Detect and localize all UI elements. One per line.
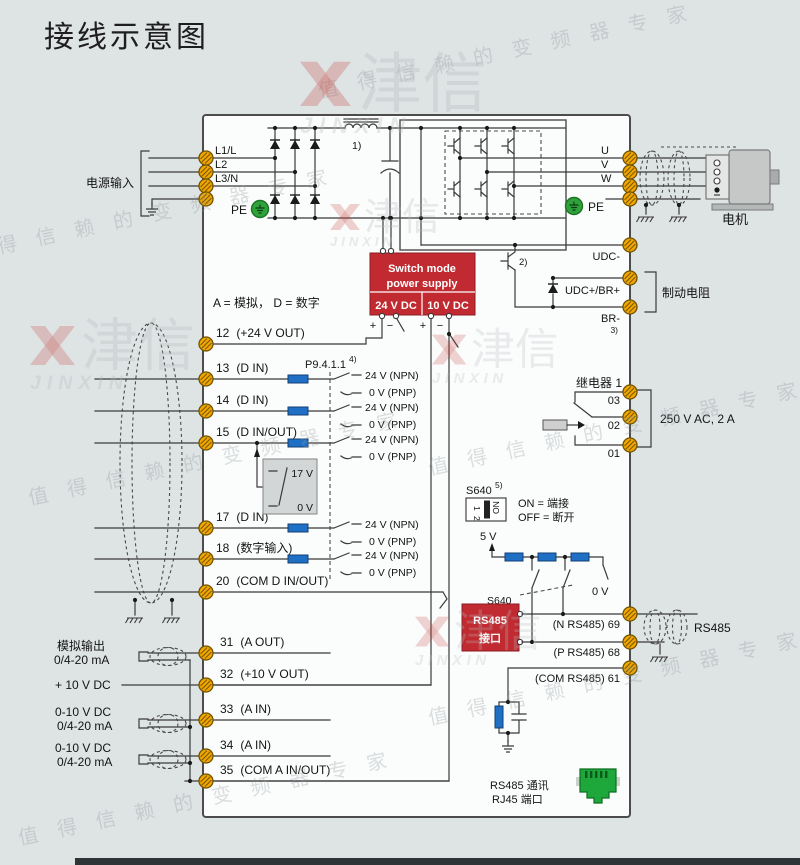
terminal-rs485-69 <box>623 607 637 621</box>
relay-label-01: 01 <box>608 448 620 460</box>
terminal-relay-02 <box>623 410 637 424</box>
terminal-label-l3: L3/N <box>215 173 238 185</box>
terminal-label-v: V <box>601 159 609 171</box>
terminal-l2 <box>199 165 213 179</box>
svg-text:18(数字输入): 18(数字输入) <box>216 540 292 555</box>
terminal-15 <box>199 436 213 450</box>
s640-0v-label: 0 V <box>592 586 609 598</box>
termination-resistor-icon <box>538 553 556 561</box>
relay-rating: 250 V AC, 2 A <box>660 412 735 426</box>
terminal-13-num: 13 <box>216 361 230 375</box>
shield-ground-icon <box>670 217 688 222</box>
terminal-input-gnd <box>199 192 213 206</box>
pnp-label: 0 V (PNP) <box>369 451 416 463</box>
terminal-14-name: (D IN) <box>236 393 268 407</box>
terminal-35 <box>199 774 213 788</box>
terminal-rs485-61 <box>623 661 637 675</box>
control-cable-shield-icon <box>120 323 182 603</box>
terminal-12-name: (+24 V OUT) <box>236 326 304 340</box>
terminal-35-num: 35 <box>220 763 234 777</box>
rs485-com-label: (COM RS485) 61 <box>535 673 620 685</box>
rs485-comm-line1: RS485 通讯 <box>490 779 549 792</box>
terminal-31-num: 31 <box>220 635 234 649</box>
dip-on-label: ON <box>491 501 501 514</box>
power-input-section: 电源输入 <box>86 151 199 216</box>
footer-rule <box>75 858 800 865</box>
motor-label: 电机 <box>722 212 748 227</box>
terminal-udc-minus <box>623 238 637 252</box>
svg-text:17(D IN): 17(D IN) <box>216 510 268 524</box>
power-input-bracket <box>141 151 149 216</box>
rs485-p-label: (P RS485) 68 <box>554 647 620 659</box>
terminal-18-name: (数字输入) <box>236 540 292 555</box>
rs485-box-line2: 接口 <box>479 631 501 645</box>
input-resistor-icon <box>288 439 308 447</box>
s640-dip-switch-icon: 1 2 ON <box>466 498 506 521</box>
threshold-high-label: 17 V <box>291 468 313 480</box>
dip-2-label: 2 <box>472 516 482 521</box>
watermark-brand-cn: 津信 <box>81 314 195 378</box>
pe-terminal-input-icon <box>252 201 269 218</box>
terminal-label-w: W <box>601 173 612 185</box>
input-resistor-icon <box>288 524 308 532</box>
wiring-diagram-page: 接线示意图 电源输入 L1/L L2 L3/N 1) <box>0 0 800 865</box>
terminal-31 <box>199 646 213 660</box>
psu-24v-plus: + <box>370 320 376 332</box>
terminal-v <box>623 165 637 179</box>
psu-24v-label: 24 V DC <box>375 300 417 312</box>
svg-text:34(A IN): 34(A IN) <box>220 738 271 752</box>
psu-24v-minus: − <box>387 320 393 332</box>
rs485-box-line1: RS485 <box>473 615 507 627</box>
svg-text:15(D IN/OUT): 15(D IN/OUT) <box>216 425 297 439</box>
svg-text:31(A OUT): 31(A OUT) <box>220 635 284 649</box>
terminal-32-name: (+10 V OUT) <box>240 667 308 681</box>
terminal-l3 <box>199 179 213 193</box>
npn-label: 24 V (NPN) <box>365 402 419 414</box>
label-br-minus: BR- <box>601 313 620 325</box>
analog-in1-range: 0/4-20 mA <box>57 719 112 733</box>
watermark-slogan: 值 得 信 赖 的 变 频 器 专 家 <box>316 1 695 103</box>
svg-text:13(D IN): 13(D IN) <box>216 361 268 375</box>
label-udc-plus: UDC+/BR+ <box>565 285 620 297</box>
psu-title-2: power supply <box>387 278 459 290</box>
terminal-33 <box>199 713 213 727</box>
rc-resistor-icon <box>495 706 503 728</box>
svg-text:14(D IN): 14(D IN) <box>216 393 268 407</box>
relay-bracket <box>637 390 651 447</box>
terminal-20 <box>199 585 213 599</box>
terminal-12 <box>199 337 213 351</box>
brake-resistor-bracket <box>645 272 656 312</box>
psu-10v-minus: − <box>437 320 443 332</box>
s640-label: S640 <box>466 485 492 497</box>
input-resistor-icon <box>288 375 308 383</box>
terminal-relay-01 <box>623 438 637 452</box>
terminal-14 <box>199 404 213 418</box>
pnp-label: 0 V (PNP) <box>369 419 416 431</box>
analog-in1-type: 0-10 V DC <box>55 705 111 719</box>
note-3: 3) <box>610 325 618 335</box>
threshold-low-label: 0 V <box>297 502 313 514</box>
input-resistor-icon <box>288 407 308 415</box>
motor-icon <box>706 150 779 210</box>
svg-text:12(+24 V OUT): 12(+24 V OUT) <box>216 326 305 340</box>
s640-off-rule: OFF = 断开 <box>518 510 575 524</box>
terminal-35-name: (COM A IN/OUT) <box>240 763 330 777</box>
terminal-motor-shield <box>623 192 637 206</box>
terminal-34-name: (A IN) <box>240 738 271 752</box>
terminal-relay-03 <box>623 385 637 399</box>
analog-out-label: 模拟输出 <box>57 638 105 653</box>
terminal-label-l2: L2 <box>215 159 227 171</box>
terminal-18-num: 18 <box>216 541 230 555</box>
watermark-brand-cn: 津信 <box>358 48 487 120</box>
relay-label-03: 03 <box>608 395 620 407</box>
pe-terminal-output-icon <box>566 198 583 215</box>
terminal-33-num: 33 <box>220 702 234 716</box>
terminal-label-u: U <box>601 145 609 157</box>
terminal-15-name: (D IN/OUT) <box>236 425 297 439</box>
terminal-18 <box>199 552 213 566</box>
terminal-l1 <box>199 151 213 165</box>
pe-label-input: PE <box>231 203 247 217</box>
terminal-34-num: 34 <box>220 738 234 752</box>
npn-label: 24 V (NPN) <box>365 550 419 562</box>
terminal-34 <box>199 749 213 763</box>
shield-ground-icon <box>637 217 655 222</box>
terminal-w <box>623 179 637 193</box>
shield-ground-icon <box>163 618 181 623</box>
terminal-13 <box>199 372 213 386</box>
npn-label: 24 V (NPN) <box>365 370 419 382</box>
terminal-32 <box>199 678 213 692</box>
label-udc-minus: UDC- <box>593 251 621 263</box>
svg-text:33(A IN): 33(A IN) <box>220 702 271 716</box>
terminal-u <box>623 151 637 165</box>
terminal-20-name: (COM D IN/OUT) <box>236 574 328 588</box>
s640-5v-label: 5 V <box>480 531 497 543</box>
page-title: 接线示意图 <box>44 21 209 54</box>
relay-title: 继电器 1 <box>576 376 622 390</box>
rs485-cable-label: RS485 <box>694 621 731 635</box>
terminal-15-num: 15 <box>216 425 230 439</box>
termination-resistor-icon <box>571 553 589 561</box>
npn-label: 24 V (NPN) <box>365 519 419 531</box>
pnp-label: 0 V (PNP) <box>369 536 416 548</box>
shield-ground-icon <box>651 657 669 662</box>
motor-cable-shield-icon <box>640 151 690 205</box>
analog-out-range: 0/4-20 mA <box>54 653 109 667</box>
termination-resistor-icon <box>505 553 523 561</box>
terminal-12-num: 12 <box>216 326 230 340</box>
psu-title-1: Switch mode <box>388 263 456 275</box>
watermark-brand-en: JINXIN <box>30 372 129 394</box>
relay-label-02: 02 <box>608 420 620 432</box>
note-1: 1) <box>352 140 361 152</box>
ground-icon <box>146 203 158 215</box>
rs485-n-label: (N RS485) 69 <box>553 619 620 631</box>
terminal-udc-plus <box>623 271 637 285</box>
analog-in2-type: 0-10 V DC <box>55 741 111 755</box>
note-5: 5) <box>495 480 503 490</box>
relay-coil-icon <box>543 420 567 430</box>
terminal-33-name: (A IN) <box>240 702 271 716</box>
p-ref-label: P9.4.1.1 <box>305 359 346 371</box>
analog-in2-range: 0/4-20 mA <box>57 755 112 769</box>
legend-label: A = 模拟， D = 数字 <box>213 295 320 310</box>
brake-resistor-label: 制动电阻 <box>662 286 710 300</box>
terminal-label-l1: L1/L <box>215 145 236 157</box>
pnp-label: 0 V (PNP) <box>369 567 416 579</box>
watermark-logo: 津信 JINXIN <box>30 314 195 394</box>
power-input-label: 电源输入 <box>86 175 134 190</box>
psu-10v-plus: + <box>420 320 426 332</box>
terminal-20-num: 20 <box>216 574 230 588</box>
note-2: 2) <box>519 257 527 268</box>
motor-section: 电机 <box>637 147 780 227</box>
rs485-comm-line2: RJ45 端口 <box>492 793 543 806</box>
note-4: 4) <box>349 354 357 364</box>
terminal-rs485-68 <box>623 635 637 649</box>
analog-10v-label: + 10 V DC <box>55 678 111 692</box>
svg-text:32(+10 V OUT): 32(+10 V OUT) <box>220 667 309 681</box>
rs485-cable-shield-icon <box>637 610 697 662</box>
input-resistor-icon <box>288 555 308 563</box>
npn-label: 24 V (NPN) <box>365 434 419 446</box>
terminal-17-num: 17 <box>216 510 230 524</box>
pnp-label: 0 V (PNP) <box>369 387 416 399</box>
psu-10v-label: 10 V DC <box>427 300 469 312</box>
terminal-13-name: (D IN) <box>236 361 268 375</box>
terminal-31-name: (A OUT) <box>240 635 284 649</box>
pe-label-output: PE <box>588 200 604 214</box>
shield-ground-icon <box>126 618 144 623</box>
terminal-32-num: 32 <box>220 667 234 681</box>
terminal-17 <box>199 521 213 535</box>
terminal-br-minus <box>623 300 637 314</box>
terminal-14-num: 14 <box>216 393 230 407</box>
dip-1-label: 1 <box>472 506 482 511</box>
s640-on-rule: ON = 端接 <box>518 497 569 510</box>
